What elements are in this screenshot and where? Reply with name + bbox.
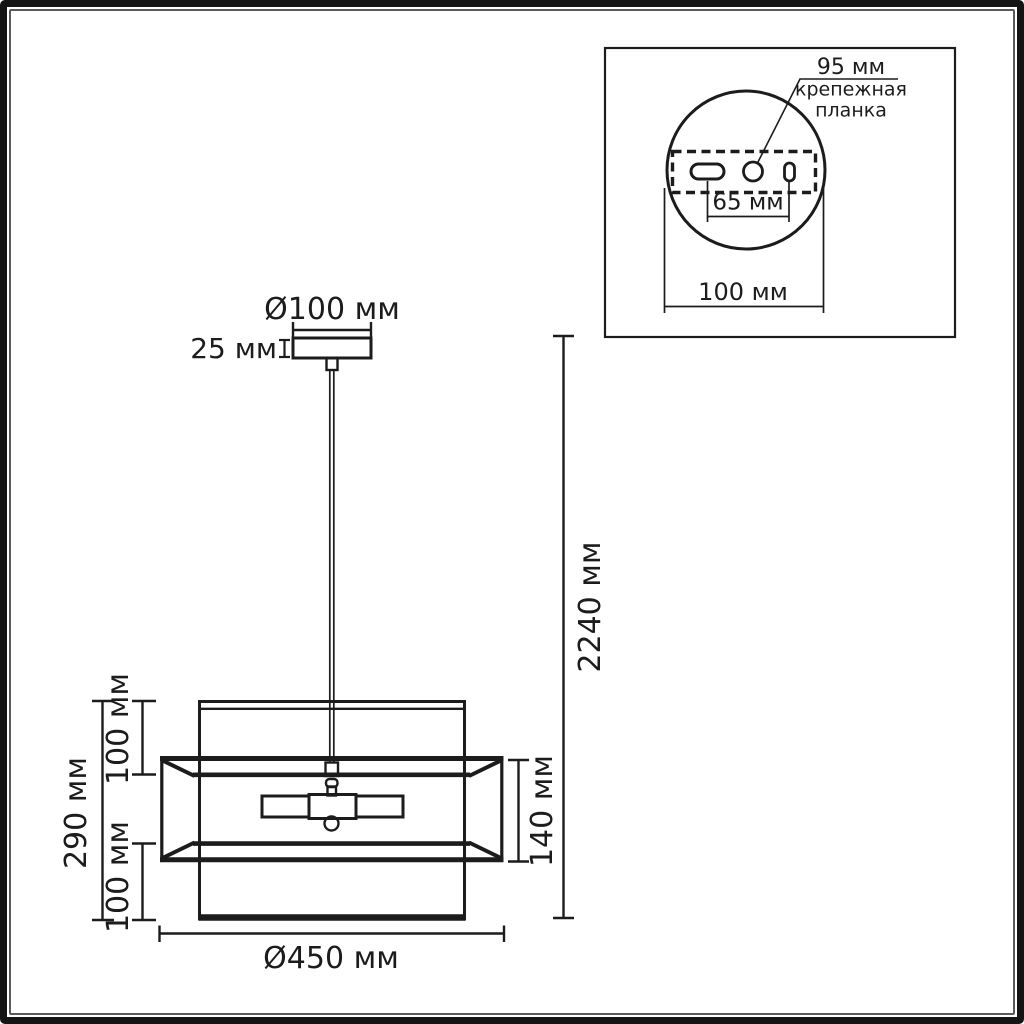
label-lower-section: 100 мм bbox=[104, 821, 134, 933]
label-plate-name: крепежная планка bbox=[795, 79, 907, 120]
label-canopy-diameter: Ø100 мм bbox=[264, 295, 400, 325]
inner-shade-outline bbox=[198, 700, 466, 921]
dim-canopy-height-marker bbox=[279, 340, 290, 357]
label-plate-length: 95 мм bbox=[817, 57, 885, 79]
mounting-slot-right bbox=[785, 163, 795, 181]
label-shade-diameter: Ø450 мм bbox=[263, 944, 399, 974]
socket-right bbox=[356, 796, 403, 817]
socket-left bbox=[262, 796, 309, 817]
label-base-diameter: 100 мм bbox=[698, 280, 788, 304]
diagram-canvas: Ø100 мм 25 мм 2240 мм 140 мм 290 мм 100 … bbox=[0, 0, 1024, 1024]
mounting-slot-left bbox=[691, 164, 724, 179]
dim-shade-diameter-450 bbox=[160, 926, 505, 943]
label-overall-height: 2240 мм bbox=[576, 541, 606, 672]
pendant-lamp-diagram bbox=[0, 0, 1024, 1024]
label-band-height: 140 мм bbox=[528, 755, 558, 867]
mounting-hole-center bbox=[744, 162, 763, 181]
suspension-rod bbox=[330, 370, 334, 763]
canopy-front-view bbox=[279, 322, 371, 370]
canopy-stem-connector bbox=[327, 358, 338, 370]
label-canopy-height: 25 мм bbox=[190, 335, 277, 363]
label-shade-height: 290 мм bbox=[62, 757, 92, 869]
label-upper-section: 100 мм bbox=[104, 673, 134, 785]
label-hole-spacing: 65 мм bbox=[712, 192, 783, 215]
canopy-outline bbox=[293, 338, 371, 358]
outer-band bbox=[160, 757, 504, 861]
socket-center bbox=[309, 795, 356, 819]
